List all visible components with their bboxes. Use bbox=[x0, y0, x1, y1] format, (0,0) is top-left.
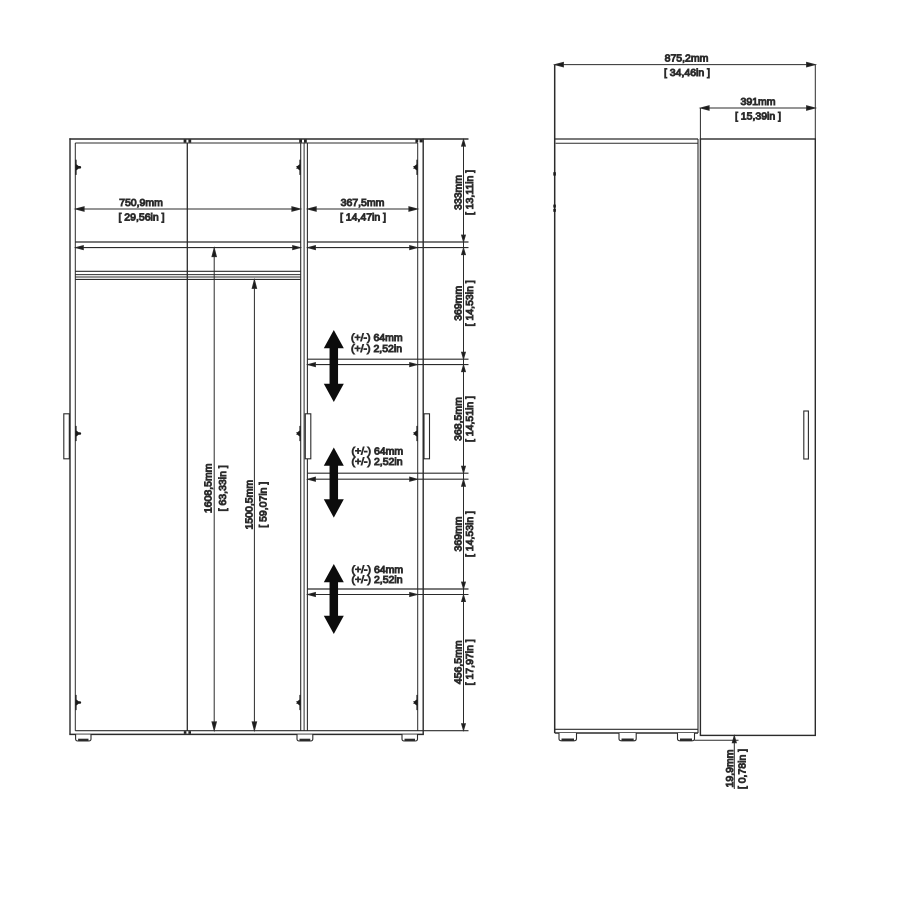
svg-text:[ 17,97in ]: [ 17,97in ] bbox=[464, 639, 476, 685]
svg-text:[ 34,46in ]: [ 34,46in ] bbox=[664, 67, 710, 79]
svg-text:[ 14,53in ]: [ 14,53in ] bbox=[464, 280, 476, 326]
svg-text:1608,5mm: 1608,5mm bbox=[203, 463, 215, 513]
svg-text:[ 14,51in ]: [ 14,51in ] bbox=[464, 396, 476, 442]
svg-text:[ 63,33in ]: [ 63,33in ] bbox=[217, 465, 229, 511]
svg-text:333mm: 333mm bbox=[452, 175, 464, 210]
svg-text:391mm: 391mm bbox=[740, 96, 775, 108]
svg-text:369mm: 369mm bbox=[452, 516, 464, 551]
svg-text:[ 13,11in ]: [ 13,11in ] bbox=[464, 170, 476, 215]
svg-text:750,9mm: 750,9mm bbox=[119, 197, 163, 209]
svg-text:(+/-) 2,52in: (+/-) 2,52in bbox=[352, 574, 403, 586]
svg-text:875,2mm: 875,2mm bbox=[665, 53, 709, 65]
svg-text:[ 0,78in ]: [ 0,78in ] bbox=[737, 749, 749, 789]
svg-text:[ 59,07in ]: [ 59,07in ] bbox=[258, 482, 270, 528]
svg-text:[ 14,47in ]: [ 14,47in ] bbox=[340, 211, 386, 223]
svg-text:19,9mm: 19,9mm bbox=[724, 749, 736, 787]
svg-text:(+/-) 2,52in: (+/-) 2,52in bbox=[352, 456, 403, 468]
svg-text:367,5mm: 367,5mm bbox=[341, 197, 385, 209]
svg-text:368,5mm: 368,5mm bbox=[452, 397, 464, 441]
svg-text:(+/-) 2,52in: (+/-) 2,52in bbox=[351, 343, 402, 355]
svg-text:[ 15,39in ]: [ 15,39in ] bbox=[735, 110, 781, 122]
svg-text:[ 14,53in ]: [ 14,53in ] bbox=[464, 511, 476, 557]
svg-text:369mm: 369mm bbox=[452, 286, 464, 321]
svg-text:456,5mm: 456,5mm bbox=[452, 640, 464, 684]
svg-text:[ 29,56in ]: [ 29,56in ] bbox=[118, 211, 164, 223]
svg-text:1500,5mm: 1500,5mm bbox=[243, 480, 255, 530]
